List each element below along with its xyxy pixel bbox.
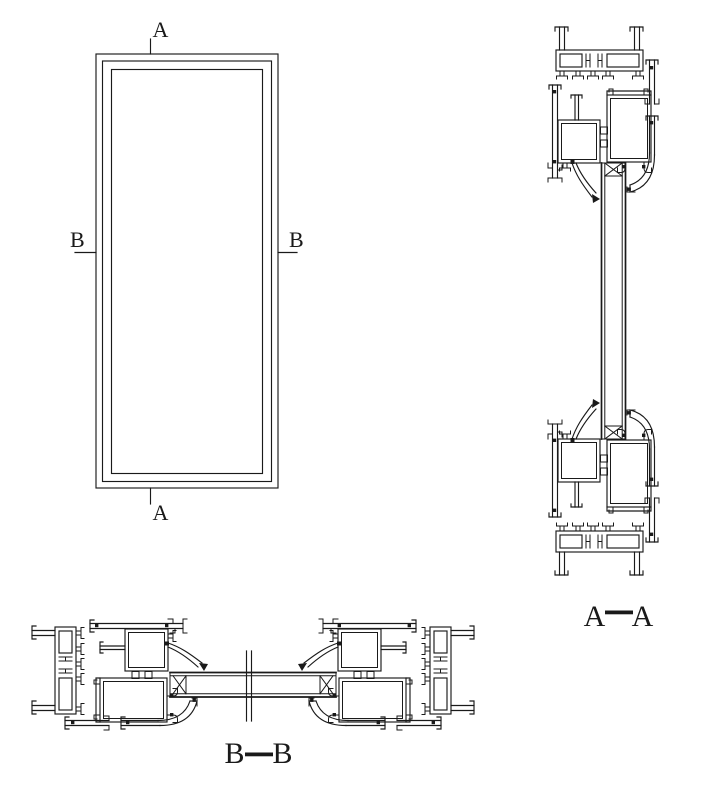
break-lines (247, 651, 252, 721)
cad-drawing: A A B B A (0, 0, 705, 795)
section-bb-label-right: B (272, 737, 292, 770)
section-bb-label-dash (245, 753, 273, 757)
section-bb-label-left: B (224, 737, 244, 770)
right-jamb-profile-section (298, 619, 474, 730)
section-aa-view: A A (548, 27, 659, 633)
frame-outer-rect (96, 54, 278, 488)
section-bb-view: B B (32, 619, 474, 770)
glass-spacer-left (173, 676, 186, 694)
section-aa-label-left: A (584, 600, 606, 633)
section-aa-label-dash (605, 611, 633, 615)
marker-label: B (70, 227, 85, 252)
section-aa-label-right: A (632, 600, 654, 633)
section-marker-b-right: B (278, 227, 304, 253)
glazing-unit-vertical (602, 163, 626, 439)
section-bb-label: B B (224, 737, 292, 770)
head-profile-section (548, 27, 659, 203)
sill-profile-section (548, 399, 659, 575)
section-aa-label: A A (584, 600, 654, 633)
section-marker-a-top: A (151, 17, 169, 54)
frame-middle-rect (103, 61, 272, 482)
glass-spacer-top (605, 163, 622, 176)
marker-label: A (153, 500, 169, 525)
marker-label: B (289, 227, 304, 252)
sash-inner-rect (112, 70, 263, 474)
elevation-view: A A B B (70, 17, 304, 525)
drawing-canvas: A A B B A (0, 0, 705, 795)
glass-spacer-right (320, 676, 333, 694)
glazing-unit-horizontal (170, 651, 336, 721)
glass-spacer-bottom (605, 426, 622, 439)
section-marker-a-bottom: A (151, 488, 169, 525)
marker-label: A (153, 17, 169, 42)
section-marker-b-left: B (70, 227, 96, 253)
left-jamb-profile-section (32, 619, 208, 730)
